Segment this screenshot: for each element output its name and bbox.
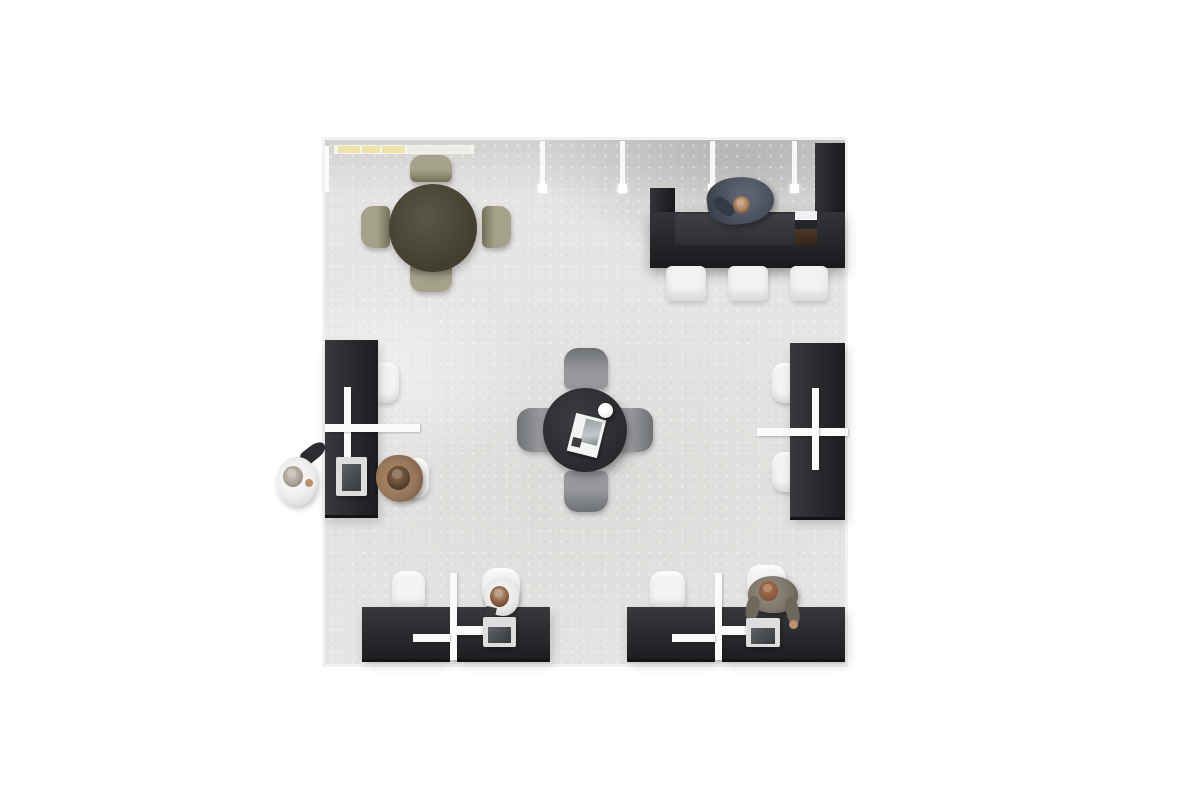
bottom-left-worker-phone bbox=[485, 606, 497, 617]
pendant-strip-1 bbox=[540, 141, 545, 187]
left-worker-head bbox=[387, 466, 410, 490]
pendant-strip-2 bbox=[620, 141, 625, 187]
magazine-photo-small bbox=[571, 437, 582, 448]
bottom-left-chair bbox=[392, 571, 425, 607]
bottom-left-laptop-screen bbox=[488, 627, 511, 643]
left-desk-laptop bbox=[336, 457, 367, 496]
shelf-light-yellow-3 bbox=[382, 146, 405, 153]
reception-stool-2 bbox=[728, 266, 768, 301]
reception-stool-1 bbox=[666, 266, 706, 301]
cafe-chair-north bbox=[410, 155, 452, 182]
magazine-photo bbox=[580, 418, 602, 445]
bottom-right-divider-h-left bbox=[672, 634, 715, 642]
bottom-right-laptop bbox=[746, 618, 780, 647]
cafe-table-top bbox=[389, 184, 477, 272]
bottom-right-laptop-screen bbox=[751, 628, 775, 644]
cafe-chair-east bbox=[482, 206, 511, 248]
shelf-light-pale bbox=[407, 146, 471, 153]
visitor-head bbox=[283, 466, 303, 487]
pendant-strip-4 bbox=[792, 141, 797, 187]
shelf-light-yellow-1 bbox=[338, 146, 360, 153]
bottom-right-worker-head bbox=[759, 581, 778, 601]
bottom-right-worker-hand bbox=[789, 620, 798, 629]
coffee-machine-paper bbox=[795, 211, 817, 219]
left-laptop-screen bbox=[342, 464, 361, 491]
right-desk-divider-horizontal bbox=[757, 428, 848, 436]
bottom-left-desk-a bbox=[362, 607, 450, 659]
center-chair-south bbox=[564, 471, 608, 512]
shelf-light-yellow-2 bbox=[362, 146, 380, 153]
wall-strip-left-edge bbox=[325, 146, 329, 192]
receptionist-head bbox=[733, 196, 750, 214]
bottom-left-divider-h-left bbox=[413, 634, 450, 642]
cafe-chair-west bbox=[361, 206, 390, 248]
pendant-strip-3 bbox=[710, 141, 715, 187]
office-top-view-render bbox=[0, 0, 1200, 800]
bottom-right-divider-vertical bbox=[715, 573, 722, 660]
left-desk-chair bbox=[376, 362, 399, 403]
center-chair-north bbox=[564, 348, 608, 389]
bottom-right-chair bbox=[650, 571, 685, 607]
coffee-machine-body bbox=[795, 229, 817, 246]
reception-stool-3 bbox=[790, 266, 828, 301]
left-desk-divider-horizontal bbox=[325, 424, 420, 432]
bottom-left-divider-vertical bbox=[450, 573, 457, 660]
bottom-left-laptop bbox=[483, 617, 516, 647]
bottom-left-worker-head bbox=[490, 586, 509, 607]
visitor-hand bbox=[305, 479, 313, 487]
bottom-right-desk-a bbox=[627, 607, 715, 659]
white-cup bbox=[598, 403, 613, 418]
right-desk-divider-vertical bbox=[812, 388, 819, 470]
